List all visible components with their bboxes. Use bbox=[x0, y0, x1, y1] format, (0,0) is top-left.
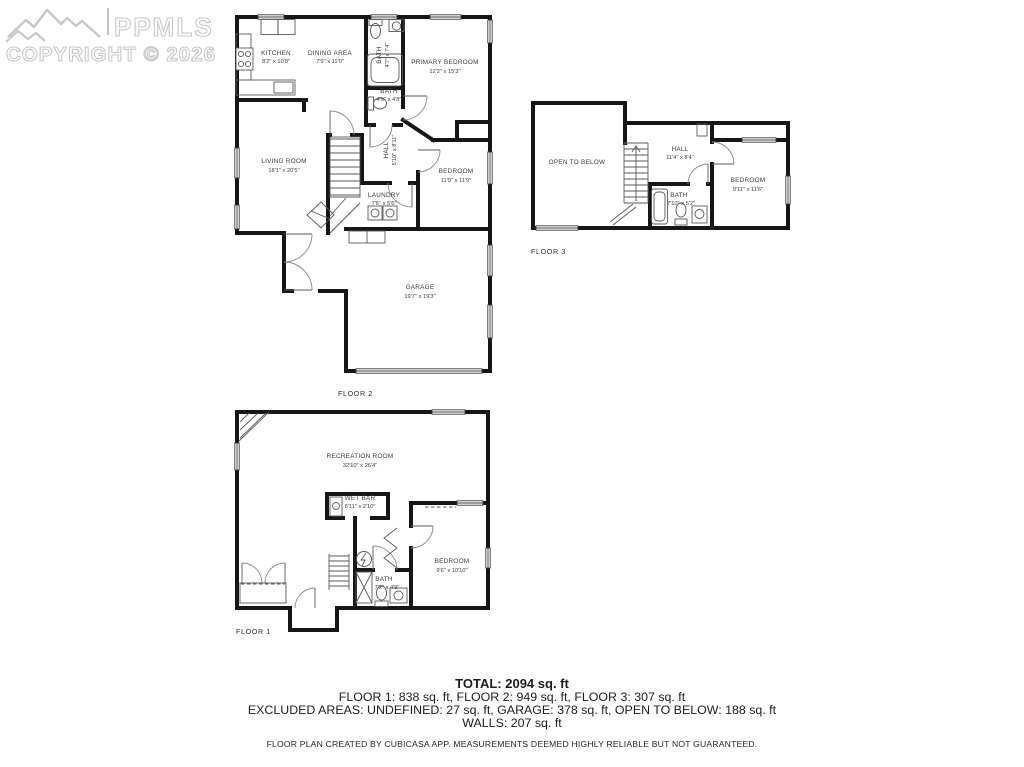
floor2-stairs bbox=[330, 137, 360, 233]
room-dims-bath-lower: 4'9" x 4'8" bbox=[377, 97, 402, 103]
room-dims-kitchen: 8'2" x 10'8" bbox=[262, 59, 290, 65]
room-dims-bedroom2: 11'9" x 11'9" bbox=[441, 178, 471, 184]
room-name-living: LIVING ROOM bbox=[261, 158, 306, 165]
room-dims-dining: 7'9" x 11'0" bbox=[316, 59, 344, 65]
room-name-bedroom1: BEDROOM bbox=[435, 558, 470, 565]
room-dims-bedroom1: 9'6" x 10'10" bbox=[436, 568, 467, 574]
room-dims-hall: 5'10" x 8'11" bbox=[392, 135, 398, 166]
summary-disclaimer: FLOOR PLAN CREATED BY CUBICASA APP. MEAS… bbox=[0, 739, 1024, 749]
ppmls-watermark: PPMLS COPYRIGHT © 2026 bbox=[4, 4, 219, 66]
room-name-laundry: LAUNDRY bbox=[368, 192, 401, 199]
room-dims-laundry: 7'6" x 5'6" bbox=[372, 201, 397, 207]
room-name-dining: DINING AREA bbox=[308, 50, 352, 57]
room-dims-primary: 12'2" x 15'3" bbox=[429, 69, 460, 75]
room-name-rec: RECREATION ROOM bbox=[327, 453, 394, 460]
floor1-windows bbox=[235, 410, 490, 611]
room-dims-bath1: 7'2" x 4'9" bbox=[375, 585, 400, 591]
room-name-open: OPEN TO BELOW bbox=[549, 159, 606, 166]
floor1-walls bbox=[237, 412, 488, 630]
room-dims-bath-upper: 4'7" x 7'4" bbox=[385, 43, 391, 68]
room-name-hall3: HALL bbox=[672, 146, 689, 153]
wetbar-counter bbox=[330, 497, 342, 516]
window-well bbox=[240, 583, 286, 603]
floor3-label: FLOOR 3 bbox=[531, 247, 566, 256]
toilet-icon bbox=[368, 97, 374, 110]
floor3-stairs bbox=[610, 143, 648, 225]
room-name-wetbar: WET BAR bbox=[345, 495, 376, 502]
floor2-plan: KITCHEN 8'2" x 10'8" DINING AREA 7'9" x … bbox=[228, 8, 496, 404]
floorplan-page: PPMLS COPYRIGHT © 2026 bbox=[0, 0, 1024, 767]
bifold-closet-doors bbox=[384, 528, 397, 568]
room-name-primary: PRIMARY BEDROOM bbox=[411, 59, 478, 66]
closet-door bbox=[697, 124, 707, 136]
room-name-kitchen: KITCHEN bbox=[261, 50, 291, 57]
room-name-garage: GARAGE bbox=[406, 284, 435, 291]
room-dims-rec: 32'10" x 26'4" bbox=[343, 463, 377, 469]
room-name-bath3: BATH bbox=[670, 192, 688, 199]
summary-floors: FLOOR 1: 838 sq. ft, FLOOR 2: 949 sq. ft… bbox=[0, 691, 1024, 703]
floor3-plan: OPEN TO BELOW HALL 11'4" x 8'4" BATH 7'1… bbox=[525, 93, 795, 261]
watermark-copyright: COPYRIGHT © 2026 bbox=[6, 43, 216, 66]
room-name-bedroom2: BEDROOM bbox=[439, 168, 474, 175]
washer-icon bbox=[368, 206, 382, 220]
stove-icon bbox=[236, 48, 253, 70]
room-dims-bedroom3: 9'11" x 11'6" bbox=[733, 187, 763, 193]
floor2-laundry-fixtures bbox=[307, 202, 397, 243]
room-name-hall: HALL bbox=[383, 141, 390, 158]
room-name-bath-lower: BATH bbox=[380, 88, 398, 95]
toilet-icon bbox=[675, 219, 687, 225]
sink-icon bbox=[692, 206, 707, 223]
floor2-kitchen-fixtures bbox=[236, 20, 295, 96]
floor1-label: FLOOR 1 bbox=[236, 627, 271, 636]
room-name-bath1: BATH bbox=[375, 576, 393, 583]
corner-hatch bbox=[239, 412, 269, 441]
room-dims-wetbar: 8'11" x 2'10" bbox=[345, 504, 376, 510]
room-dims-bath3: 7'10" x 5'2" bbox=[667, 201, 695, 207]
dryer-icon bbox=[383, 206, 397, 220]
toilet-icon bbox=[369, 20, 382, 26]
floor2-label: FLOOR 2 bbox=[338, 389, 373, 398]
utility-icon bbox=[357, 552, 372, 567]
room-name-bath-upper: BATH bbox=[376, 46, 383, 64]
summary-excluded: EXCLUDED AREAS: UNDEFINED: 27 sq. ft, GA… bbox=[0, 704, 1024, 716]
room-dims-living: 18'1" x 20'5" bbox=[268, 168, 299, 174]
room-dims-garage: 19'7" x 19'3" bbox=[404, 294, 435, 300]
toilet-icon bbox=[375, 601, 388, 607]
summary-total: TOTAL: 2094 sq. ft bbox=[0, 678, 1024, 690]
room-name-bedroom3: BEDROOM bbox=[731, 177, 766, 184]
room-dims-hall3: 11'4" x 8'4" bbox=[666, 155, 694, 161]
summary-walls: WALLS: 207 sq. ft bbox=[0, 717, 1024, 729]
floor1-doors bbox=[242, 526, 433, 608]
watermark-brand: PPMLS bbox=[114, 12, 214, 42]
summary: TOTAL: 2094 sq. ft FLOOR 1: 838 sq. ft, … bbox=[0, 678, 1024, 749]
floor1-plan: RECREATION ROOM 32'10" x 26'4" WET BAR 8… bbox=[228, 405, 495, 640]
